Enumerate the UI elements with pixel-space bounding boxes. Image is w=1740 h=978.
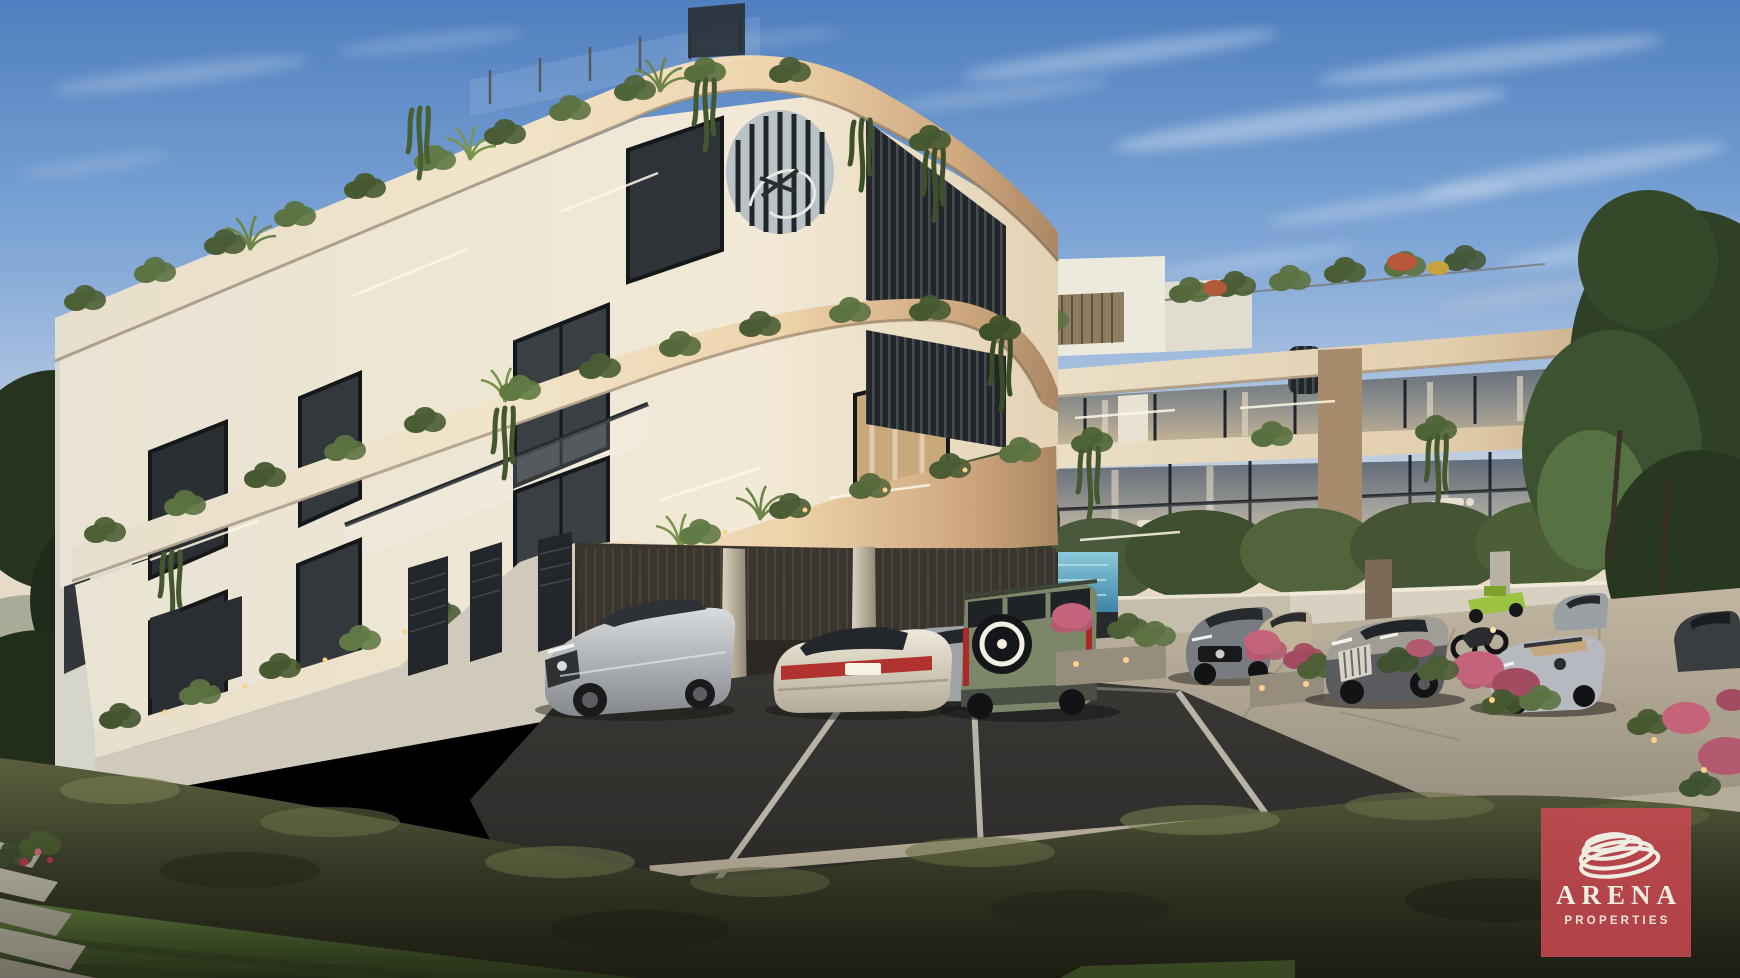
arena-rings-icon <box>1568 822 1664 880</box>
scene-svg <box>0 0 1740 978</box>
arena-properties-logo: ARENA PROPERTIES <box>1541 808 1691 957</box>
render-canvas: ARENA PROPERTIES <box>0 0 1740 978</box>
logo-title: ARENA <box>1550 882 1682 909</box>
dusk-vignette <box>0 820 1740 978</box>
roof-access-glass <box>688 3 745 58</box>
logo-subtitle: PROPERTIES <box>1561 916 1670 928</box>
upper-floor-pier <box>1118 394 1148 445</box>
spiral-staircase <box>726 110 834 234</box>
